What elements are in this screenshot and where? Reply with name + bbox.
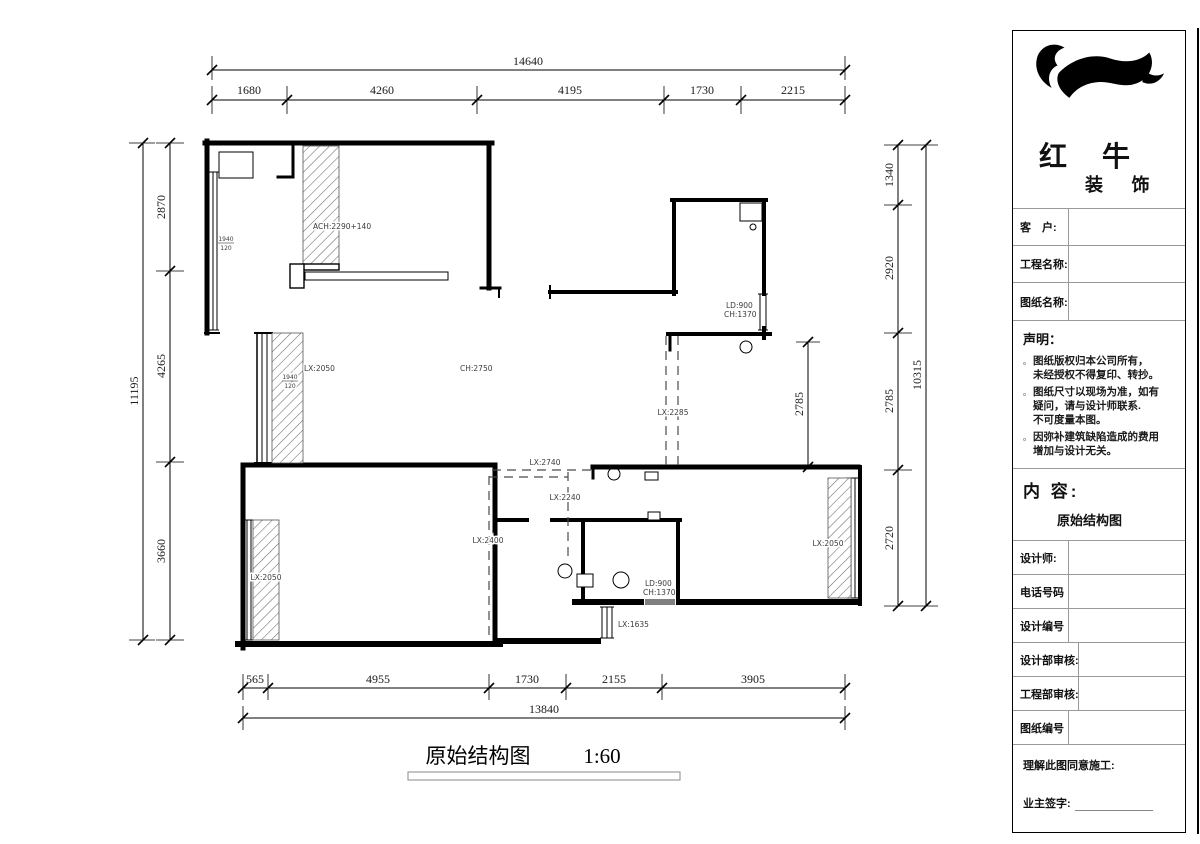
label-beam-2740: LX:2740 xyxy=(530,458,561,467)
dim-left-total: 11195 xyxy=(127,376,141,405)
approval-section: 理解此图同意施工: 业主签字: xyxy=(1013,745,1185,833)
content-value: 原始结构图 xyxy=(1057,510,1185,529)
dim-bottom-seg: 565 xyxy=(246,672,264,686)
field-label: 电话号码 xyxy=(1013,575,1069,608)
field-row-engineering-audit: 工程部审核: xyxy=(1013,677,1185,711)
title-block: 红 牛 装 饰 客 户: 工程名称: 图纸名称: 声明： 。 图纸版权归本公司所… xyxy=(1012,30,1186,833)
statement-item: 。 图纸版权归本公司所有， 未经授权不得复印、转抄。 xyxy=(1023,354,1179,382)
statement-line: 疑问，请与设计师联系. xyxy=(1033,399,1159,413)
dim-bottom-seg: 2155 xyxy=(602,672,626,686)
brand-subname: 装 饰 xyxy=(1085,171,1162,197)
dim-left-seg: 3660 xyxy=(154,539,168,563)
statement-item: 。 因弥补建筑缺陷造成的费用 增加与设计无关。 xyxy=(1023,430,1179,458)
statement-line: 因弥补建筑缺陷造成的费用 xyxy=(1033,430,1159,444)
label-beam-right: LX:2050 xyxy=(813,539,844,548)
dim-bottom-seg: 3905 xyxy=(741,672,765,686)
field-row-designer: 设计师: xyxy=(1013,541,1185,575)
statement-line: 未经授权不得复印、转抄。 xyxy=(1033,368,1159,382)
label-window-height-top: CH:1370 xyxy=(724,310,757,319)
statement-line: 增加与设计无关。 xyxy=(1033,444,1159,458)
label-window-sill-top: LD:900 xyxy=(726,301,753,310)
interior-walls xyxy=(495,200,770,602)
field-label: 设计部审核: xyxy=(1013,643,1079,676)
content-heading: 内 容: xyxy=(1023,477,1185,502)
bullet-marker: 。 xyxy=(1023,354,1033,382)
field-value xyxy=(1069,609,1185,642)
annotation-labels: ACH:2290+140 LX:2050 CH:2750 LD:900 CH:1… xyxy=(218,222,844,629)
dim-left-seg: 4265 xyxy=(154,354,168,378)
statement-line: 图纸尺寸以现场为准，如有 xyxy=(1033,385,1159,399)
statement-section: 声明： 。 图纸版权归本公司所有， 未经授权不得复印、转抄。 。 图纸尺寸以现场… xyxy=(1013,321,1185,469)
brand-logo-cell: 红 牛 装 饰 xyxy=(1013,31,1185,209)
statement-line: 图纸版权归本公司所有， xyxy=(1033,354,1159,368)
dim-right-seg: 2720 xyxy=(882,526,896,550)
field-value xyxy=(1069,711,1185,744)
window-fraction-1: 1940 120 xyxy=(218,236,234,252)
dim-top-seg: 1730 xyxy=(690,83,714,97)
dim-top-seg: 1680 xyxy=(237,83,261,97)
field-label: 客 户: xyxy=(1013,209,1069,245)
bullet-marker: 。 xyxy=(1023,385,1033,427)
label-beam-bottom-left: LX:2050 xyxy=(251,573,282,582)
dim-top-seg: 4260 xyxy=(370,83,394,97)
statement-item: 。 图纸尺寸以现场为准，如有 疑问，请与设计师联系. 不可度量本图。 xyxy=(1023,385,1179,427)
svg-text:120: 120 xyxy=(284,383,296,390)
field-row-design-audit: 设计部审核: xyxy=(1013,643,1185,677)
label-ach-height: ACH:2290+140 xyxy=(313,222,371,231)
field-value xyxy=(1079,677,1185,710)
field-value xyxy=(1069,246,1185,282)
label-ceiling-height: CH:2750 xyxy=(460,364,493,373)
dim-interior-right: 2785 xyxy=(792,392,806,416)
statement-heading: 声明： xyxy=(1023,329,1179,348)
svg-text:1940: 1940 xyxy=(218,236,233,243)
label-beam-1635: LX:1635 xyxy=(618,620,649,629)
dim-right-total: 10315 xyxy=(910,360,924,390)
label-beam-2285: LX:2285 xyxy=(658,408,689,417)
label-beam-mid-left: LX:2050 xyxy=(304,364,335,373)
plan-title: 原始结构图 xyxy=(426,744,531,768)
field-label: 图纸名称: xyxy=(1013,283,1069,320)
dim-left-seg: 2870 xyxy=(154,195,168,219)
field-value xyxy=(1069,283,1185,320)
field-value xyxy=(1079,643,1185,676)
label-window-sill-bath: LD:900 xyxy=(645,579,672,588)
field-label: 设计师: xyxy=(1013,541,1069,574)
label-window-height-bath: CH:1370 xyxy=(643,588,676,597)
dim-right-seg: 2920 xyxy=(882,256,896,280)
field-row-phone: 电话号码 xyxy=(1013,575,1185,609)
field-row-drawing-no: 图纸编号 xyxy=(1013,711,1185,745)
signature-line xyxy=(1075,810,1153,811)
plan-scale: 1:60 xyxy=(583,744,620,768)
field-value xyxy=(1069,209,1185,245)
dim-top-seg: 2215 xyxy=(781,83,805,97)
field-label: 工程名称: xyxy=(1013,246,1069,282)
drawing-sheet: 14640 1680 4260 4195 1730 2215 565 4955 … xyxy=(0,0,1200,844)
bullet-marker: 。 xyxy=(1023,430,1033,458)
field-label: 图纸编号 xyxy=(1013,711,1069,744)
dim-top-total: 14640 xyxy=(513,54,543,68)
floor-plan-canvas: 14640 1680 4260 4195 1730 2215 565 4955 … xyxy=(0,0,1010,844)
plan-title-group: 原始结构图 1:60 xyxy=(408,744,680,780)
field-label: 工程部审核: xyxy=(1013,677,1079,710)
label-beam-2240: LX:2240 xyxy=(550,493,581,502)
field-label: 设计编号 xyxy=(1013,609,1069,642)
content-section: 内 容: 原始结构图 xyxy=(1013,469,1185,541)
brand-name: 红 牛 xyxy=(1039,135,1144,175)
dim-bottom-seg: 4955 xyxy=(366,672,390,686)
title-underline-bar xyxy=(408,772,680,780)
owner-signature-label: 业主签字: xyxy=(1023,795,1071,811)
svg-text:1940: 1940 xyxy=(282,374,297,381)
dim-right-seg: 2785 xyxy=(882,389,896,413)
field-value xyxy=(1069,541,1185,574)
field-value xyxy=(1069,575,1185,608)
dim-right-seg: 1340 xyxy=(882,163,896,187)
bull-logo-icon xyxy=(1031,37,1169,137)
dim-bottom-total: 13840 xyxy=(529,702,559,716)
field-row-design-no: 设计编号 xyxy=(1013,609,1185,643)
field-row-drawing-name: 图纸名称: xyxy=(1013,283,1185,321)
dim-top-seg: 4195 xyxy=(558,83,582,97)
svg-text:120: 120 xyxy=(220,245,232,252)
field-row-customer: 客 户: xyxy=(1013,209,1185,246)
dim-bottom-seg: 1730 xyxy=(515,672,539,686)
label-beam-2400: LX:2400 xyxy=(473,536,504,545)
sheet-frame-line xyxy=(1197,28,1199,834)
field-row-project-name: 工程名称: xyxy=(1013,246,1185,283)
approval-text: 理解此图同意施工: xyxy=(1023,757,1185,773)
statement-line: 不可度量本图。 xyxy=(1033,413,1159,427)
